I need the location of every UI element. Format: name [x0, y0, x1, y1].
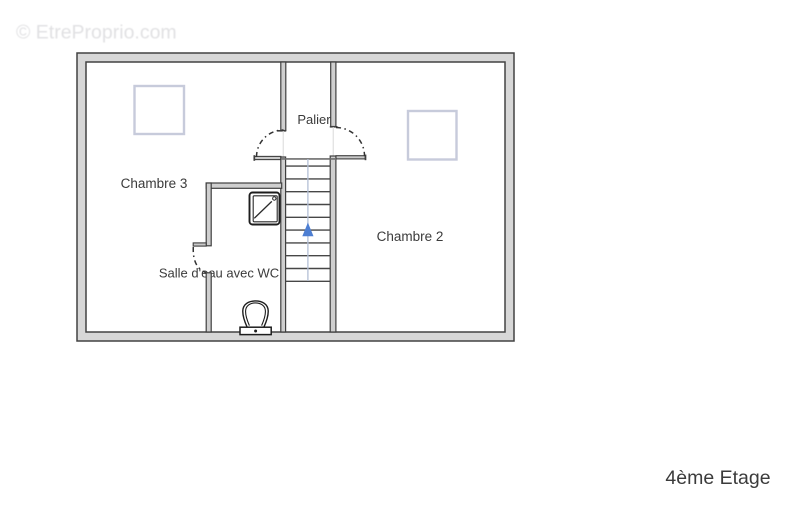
svg-text:Chambre 3: Chambre 3 — [121, 176, 188, 191]
svg-text:Salle d'eau avec WC: Salle d'eau avec WC — [159, 266, 279, 281]
svg-text:Palier: Palier — [297, 112, 331, 127]
svg-text:4ème Etage: 4ème Etage — [665, 467, 770, 489]
svg-text:Chambre 2: Chambre 2 — [377, 229, 444, 244]
svg-text:© EtreProprio.com: © EtreProprio.com — [16, 22, 177, 44]
